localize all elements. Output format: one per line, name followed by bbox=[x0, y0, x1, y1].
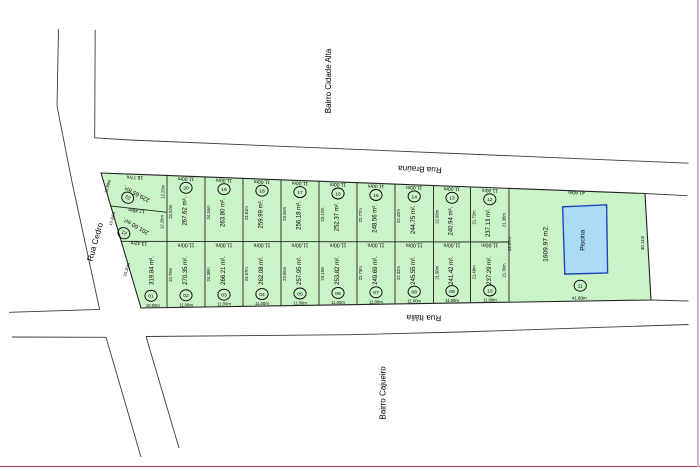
svg-text:257.95 m².: 257.95 m². bbox=[297, 256, 303, 285]
svg-text:10: 10 bbox=[487, 288, 493, 294]
svg-text:Rua Itália: Rua Itália bbox=[406, 313, 441, 323]
svg-text:11.00m: 11.00m bbox=[178, 241, 195, 247]
svg-text:11.00m: 11.00m bbox=[368, 182, 385, 189]
svg-text:Rua Cedro: Rua Cedro bbox=[86, 221, 106, 262]
svg-text:245.55 m².: 245.55 m². bbox=[411, 256, 417, 285]
svg-text:11.00m: 11.00m bbox=[254, 178, 271, 185]
svg-text:259.99 m².: 259.99 m². bbox=[259, 199, 265, 228]
svg-text:03: 03 bbox=[221, 293, 227, 299]
svg-text:23.97m: 23.97m bbox=[244, 267, 249, 281]
svg-text:24.79m: 24.79m bbox=[168, 267, 173, 281]
svg-text:14: 14 bbox=[411, 194, 417, 200]
svg-text:11.00m: 11.00m bbox=[483, 298, 497, 303]
svg-text:11.00m: 11.00m bbox=[407, 299, 421, 304]
svg-text:319.84 m².: 319.84 m². bbox=[150, 256, 156, 285]
svg-text:252.37 m².: 252.37 m². bbox=[335, 202, 341, 231]
svg-text:21.38m: 21.38m bbox=[502, 213, 507, 227]
svg-text:262.08 m².: 262.08 m². bbox=[259, 256, 265, 285]
svg-text:263.80 m².: 263.80 m². bbox=[221, 198, 227, 227]
svg-text:11.00m: 11.00m bbox=[292, 241, 309, 247]
svg-text:256.18 m².: 256.18 m². bbox=[297, 201, 303, 230]
svg-text:22.73m: 22.73m bbox=[358, 266, 363, 280]
svg-text:11.00m: 11.00m bbox=[216, 241, 233, 247]
svg-text:11.00m: 11.00m bbox=[330, 181, 347, 188]
svg-text:24.38m: 24.38m bbox=[206, 267, 211, 281]
svg-text:11.00m: 11.00m bbox=[444, 185, 461, 192]
svg-text:11.00m: 11.00m bbox=[481, 241, 498, 247]
svg-text:16: 16 bbox=[335, 191, 341, 197]
svg-text:21.36m: 21.36m bbox=[502, 263, 507, 277]
svg-text:Bairro Cidade Alta: Bairro Cidade Alta bbox=[324, 48, 333, 113]
svg-text:270.35 m².: 270.35 m². bbox=[183, 256, 189, 285]
svg-text:01: 01 bbox=[148, 294, 154, 300]
svg-text:11.00m: 11.00m bbox=[330, 241, 347, 247]
svg-text:21.72m: 21.72m bbox=[472, 210, 477, 224]
svg-text:41.60m: 41.60m bbox=[568, 189, 585, 196]
svg-text:22.08m: 22.08m bbox=[435, 209, 440, 223]
svg-text:11: 11 bbox=[578, 284, 583, 290]
svg-text:40.11m: 40.11m bbox=[640, 235, 645, 250]
svg-text:11.00m: 11.00m bbox=[445, 298, 459, 303]
svg-text:11.00m: 11.00m bbox=[255, 301, 269, 306]
svg-text:19: 19 bbox=[221, 187, 227, 193]
svg-text:11.00m: 11.00m bbox=[179, 302, 193, 307]
svg-text:02: 02 bbox=[183, 293, 189, 299]
svg-text:267.62 m².: 267.62 m². bbox=[183, 197, 189, 226]
svg-text:22.42m: 22.42m bbox=[396, 209, 401, 223]
svg-text:10.50m: 10.50m bbox=[146, 303, 160, 308]
svg-text:11.00m: 11.00m bbox=[292, 180, 309, 187]
svg-text:24.52m: 24.52m bbox=[168, 204, 173, 218]
svg-text:09: 09 bbox=[449, 289, 455, 295]
svg-text:23.12m: 23.12m bbox=[320, 207, 325, 221]
svg-text:244.75 m².: 244.75 m². bbox=[411, 205, 417, 234]
svg-text:08: 08 bbox=[411, 290, 417, 296]
svg-text:05: 05 bbox=[297, 291, 303, 297]
svg-text:241.42 m².: 241.42 m². bbox=[449, 256, 455, 285]
svg-text:249.69 m².: 249.69 m². bbox=[373, 256, 379, 285]
svg-text:21.90m: 21.90m bbox=[435, 265, 440, 279]
svg-text:18.77m: 18.77m bbox=[126, 173, 143, 180]
svg-text:23.81m: 23.81m bbox=[244, 206, 249, 220]
svg-text:11.00m: 11.00m bbox=[254, 241, 271, 247]
svg-text:253.82 m².: 253.82 m². bbox=[335, 256, 341, 285]
svg-text:11.00m: 11.00m bbox=[482, 187, 499, 194]
svg-text:15: 15 bbox=[373, 193, 379, 199]
svg-text:13.42m: 13.42m bbox=[130, 239, 147, 246]
svg-text:237.13 m².: 237.13 m². bbox=[486, 208, 492, 237]
svg-text:21.49m: 21.49m bbox=[472, 265, 477, 279]
svg-text:11.00m: 11.00m bbox=[217, 302, 231, 307]
svg-text:11.00m: 11.00m bbox=[369, 299, 383, 304]
svg-text:Piscina: Piscina bbox=[579, 229, 586, 250]
svg-text:Rua Braúna: Rua Braúna bbox=[397, 164, 441, 175]
svg-text:248.56 m².: 248.56 m². bbox=[373, 204, 379, 233]
svg-text:11.00m: 11.00m bbox=[444, 241, 461, 247]
svg-text:237.29 m².: 237.29 m². bbox=[487, 256, 493, 285]
svg-text:11.00m: 11.00m bbox=[293, 301, 307, 306]
svg-text:13: 13 bbox=[449, 196, 455, 202]
svg-text:42.37m: 42.37m bbox=[507, 237, 512, 251]
svg-text:11.00m: 11.00m bbox=[178, 175, 195, 182]
svg-text:23.15m: 23.15m bbox=[320, 266, 325, 280]
svg-text:Bairro Cajueiro: Bairro Cajueiro bbox=[379, 366, 388, 420]
svg-text:11.00m: 11.00m bbox=[216, 177, 233, 184]
svg-text:11.00m: 11.00m bbox=[331, 300, 345, 305]
svg-text:22.77m: 22.77m bbox=[358, 208, 363, 222]
svg-text:1609.97 m2.: 1609.97 m2. bbox=[543, 225, 550, 262]
svg-text:24.16m: 24.16m bbox=[206, 205, 211, 219]
svg-text:240.94 m².: 240.94 m². bbox=[449, 207, 455, 236]
svg-text:22.32m: 22.32m bbox=[396, 266, 401, 280]
svg-text:12.25m: 12.25m bbox=[160, 184, 165, 198]
svg-text:07: 07 bbox=[373, 290, 379, 296]
svg-text:12.26m: 12.26m bbox=[159, 215, 164, 229]
svg-text:20: 20 bbox=[183, 186, 189, 192]
svg-text:17: 17 bbox=[297, 190, 303, 196]
svg-text:06: 06 bbox=[335, 291, 341, 297]
svg-text:266.21 m².: 266.21 m². bbox=[221, 256, 227, 285]
svg-text:23.56m: 23.56m bbox=[282, 266, 287, 280]
svg-text:23.46m: 23.46m bbox=[282, 206, 287, 220]
svg-text:11.00m: 11.00m bbox=[406, 241, 423, 247]
svg-text:41.80m: 41.80m bbox=[572, 296, 587, 301]
svg-text:11.00m: 11.00m bbox=[368, 241, 385, 247]
svg-text:12: 12 bbox=[487, 197, 493, 203]
svg-text:18: 18 bbox=[259, 189, 265, 195]
svg-text:11.00m: 11.00m bbox=[406, 184, 423, 191]
svg-text:04: 04 bbox=[259, 292, 265, 298]
